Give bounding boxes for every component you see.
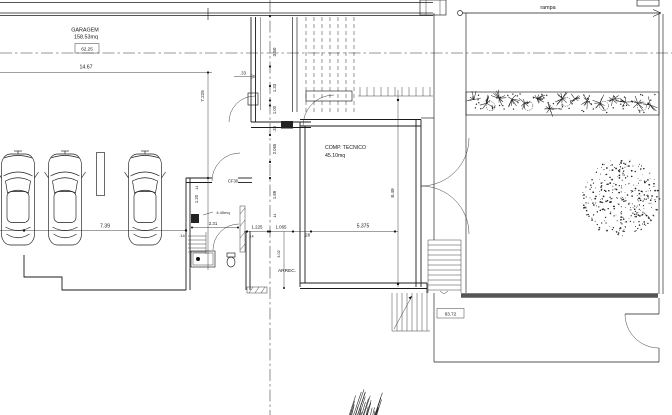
stair-direction-arrow xyxy=(409,296,413,300)
dim-7-225: 7.225 xyxy=(200,90,205,102)
exterior-stairs-right xyxy=(428,240,461,293)
column xyxy=(637,0,659,6)
floor-plan: GARAGEM 158.53mq 62.25 14.67 7.225 7.39 … xyxy=(0,0,672,415)
ramp-start-marker xyxy=(458,11,463,16)
dim-1-89: 1.89 xyxy=(272,190,277,199)
tree-icon xyxy=(582,160,660,236)
dim-5-375: 5.375 xyxy=(357,224,370,230)
bottom-right-room: 63.72 xyxy=(434,291,659,362)
dim-33-b: .33 xyxy=(272,125,277,131)
hatched-wall xyxy=(240,206,245,252)
comp-tecnico-room: COMP. TECNICO 45.10mq 8.49 xyxy=(300,90,469,293)
dim-1-225: 1.225 xyxy=(252,225,264,230)
dim-2-31: 2.31 xyxy=(209,221,218,226)
door-arc xyxy=(421,186,469,234)
dim-14-67: 14.67 xyxy=(80,65,93,71)
room-label-arrec: ARREC. xyxy=(278,268,296,274)
dim-14-c: .14 xyxy=(248,235,253,239)
garage-labels: GARAGEM 158.53mq 62.25 14.67 xyxy=(71,28,99,71)
dim-33-a: .33 xyxy=(240,71,246,76)
garage-dimensions: 7.225 7.39 .14 xyxy=(0,71,212,270)
column xyxy=(281,121,293,129)
shower-tray xyxy=(191,251,215,267)
room-label-garagem: GARAGEM xyxy=(71,28,99,34)
room-label-comp-tecnico: COMP. TECNICO xyxy=(325,145,366,151)
room-area-garagem: 158.53mq xyxy=(74,35,98,41)
door-label-cf30: CF30 xyxy=(228,179,239,184)
dim-1-33: 1.33 xyxy=(272,83,277,92)
exterior-stairs-down xyxy=(392,293,430,331)
shrub-icon xyxy=(349,389,383,415)
break-mark xyxy=(440,291,448,294)
dim-2-065: 2.065 xyxy=(272,143,277,154)
car-top-view-icon xyxy=(0,151,39,245)
level-value-patio: 63.72 xyxy=(445,312,457,317)
wc-area-label: 4.40mq xyxy=(216,210,229,215)
level-value: 62.25 xyxy=(81,47,93,52)
column xyxy=(97,153,105,196)
door-arc xyxy=(421,138,469,186)
column xyxy=(248,93,258,105)
service-rooms: CF30 1.20 .14 4.40mq 2.31 xyxy=(186,153,296,293)
dim-1-065: 1.065 xyxy=(276,225,288,230)
dim-14-d: .14 xyxy=(273,214,277,219)
dim-1-20: 1.20 xyxy=(194,194,199,203)
ramp-above xyxy=(293,17,434,112)
planting-strip-plants xyxy=(466,90,657,117)
ramp-label: rampa xyxy=(540,5,555,11)
top-boundary-walls xyxy=(0,3,433,21)
room-area-comp-tecnico: 45.10mq xyxy=(325,153,345,159)
planting-strip xyxy=(466,92,659,115)
grating-ticks xyxy=(358,87,433,96)
toilet xyxy=(227,253,235,267)
door-arc xyxy=(625,314,659,348)
door-arc xyxy=(212,153,240,181)
dim-8-49: 8.49 xyxy=(390,188,396,198)
cad-canvas: GARAGEM 158.53mq 62.25 14.67 7.225 7.39 … xyxy=(0,0,672,415)
door-arc xyxy=(213,224,239,250)
dim-14-a: .14 xyxy=(179,233,185,238)
car-top-view-icon xyxy=(45,151,86,245)
car-top-view-icon xyxy=(125,151,166,245)
dim-3-50: 3.50 xyxy=(272,47,277,56)
dim-7-39: 7.39 xyxy=(100,224,110,230)
dim-3-02: 3.02 xyxy=(277,250,281,257)
landing xyxy=(306,91,352,101)
dim-chain-horizontal: 1.225 .14 1.065 .28 5.375 xyxy=(244,224,398,239)
dim-14-b: .14 xyxy=(195,186,199,191)
dim-1-00: 1.00 xyxy=(272,105,277,114)
door-arc xyxy=(303,95,334,126)
sink xyxy=(191,214,199,223)
garage-lower-wall xyxy=(24,255,186,290)
